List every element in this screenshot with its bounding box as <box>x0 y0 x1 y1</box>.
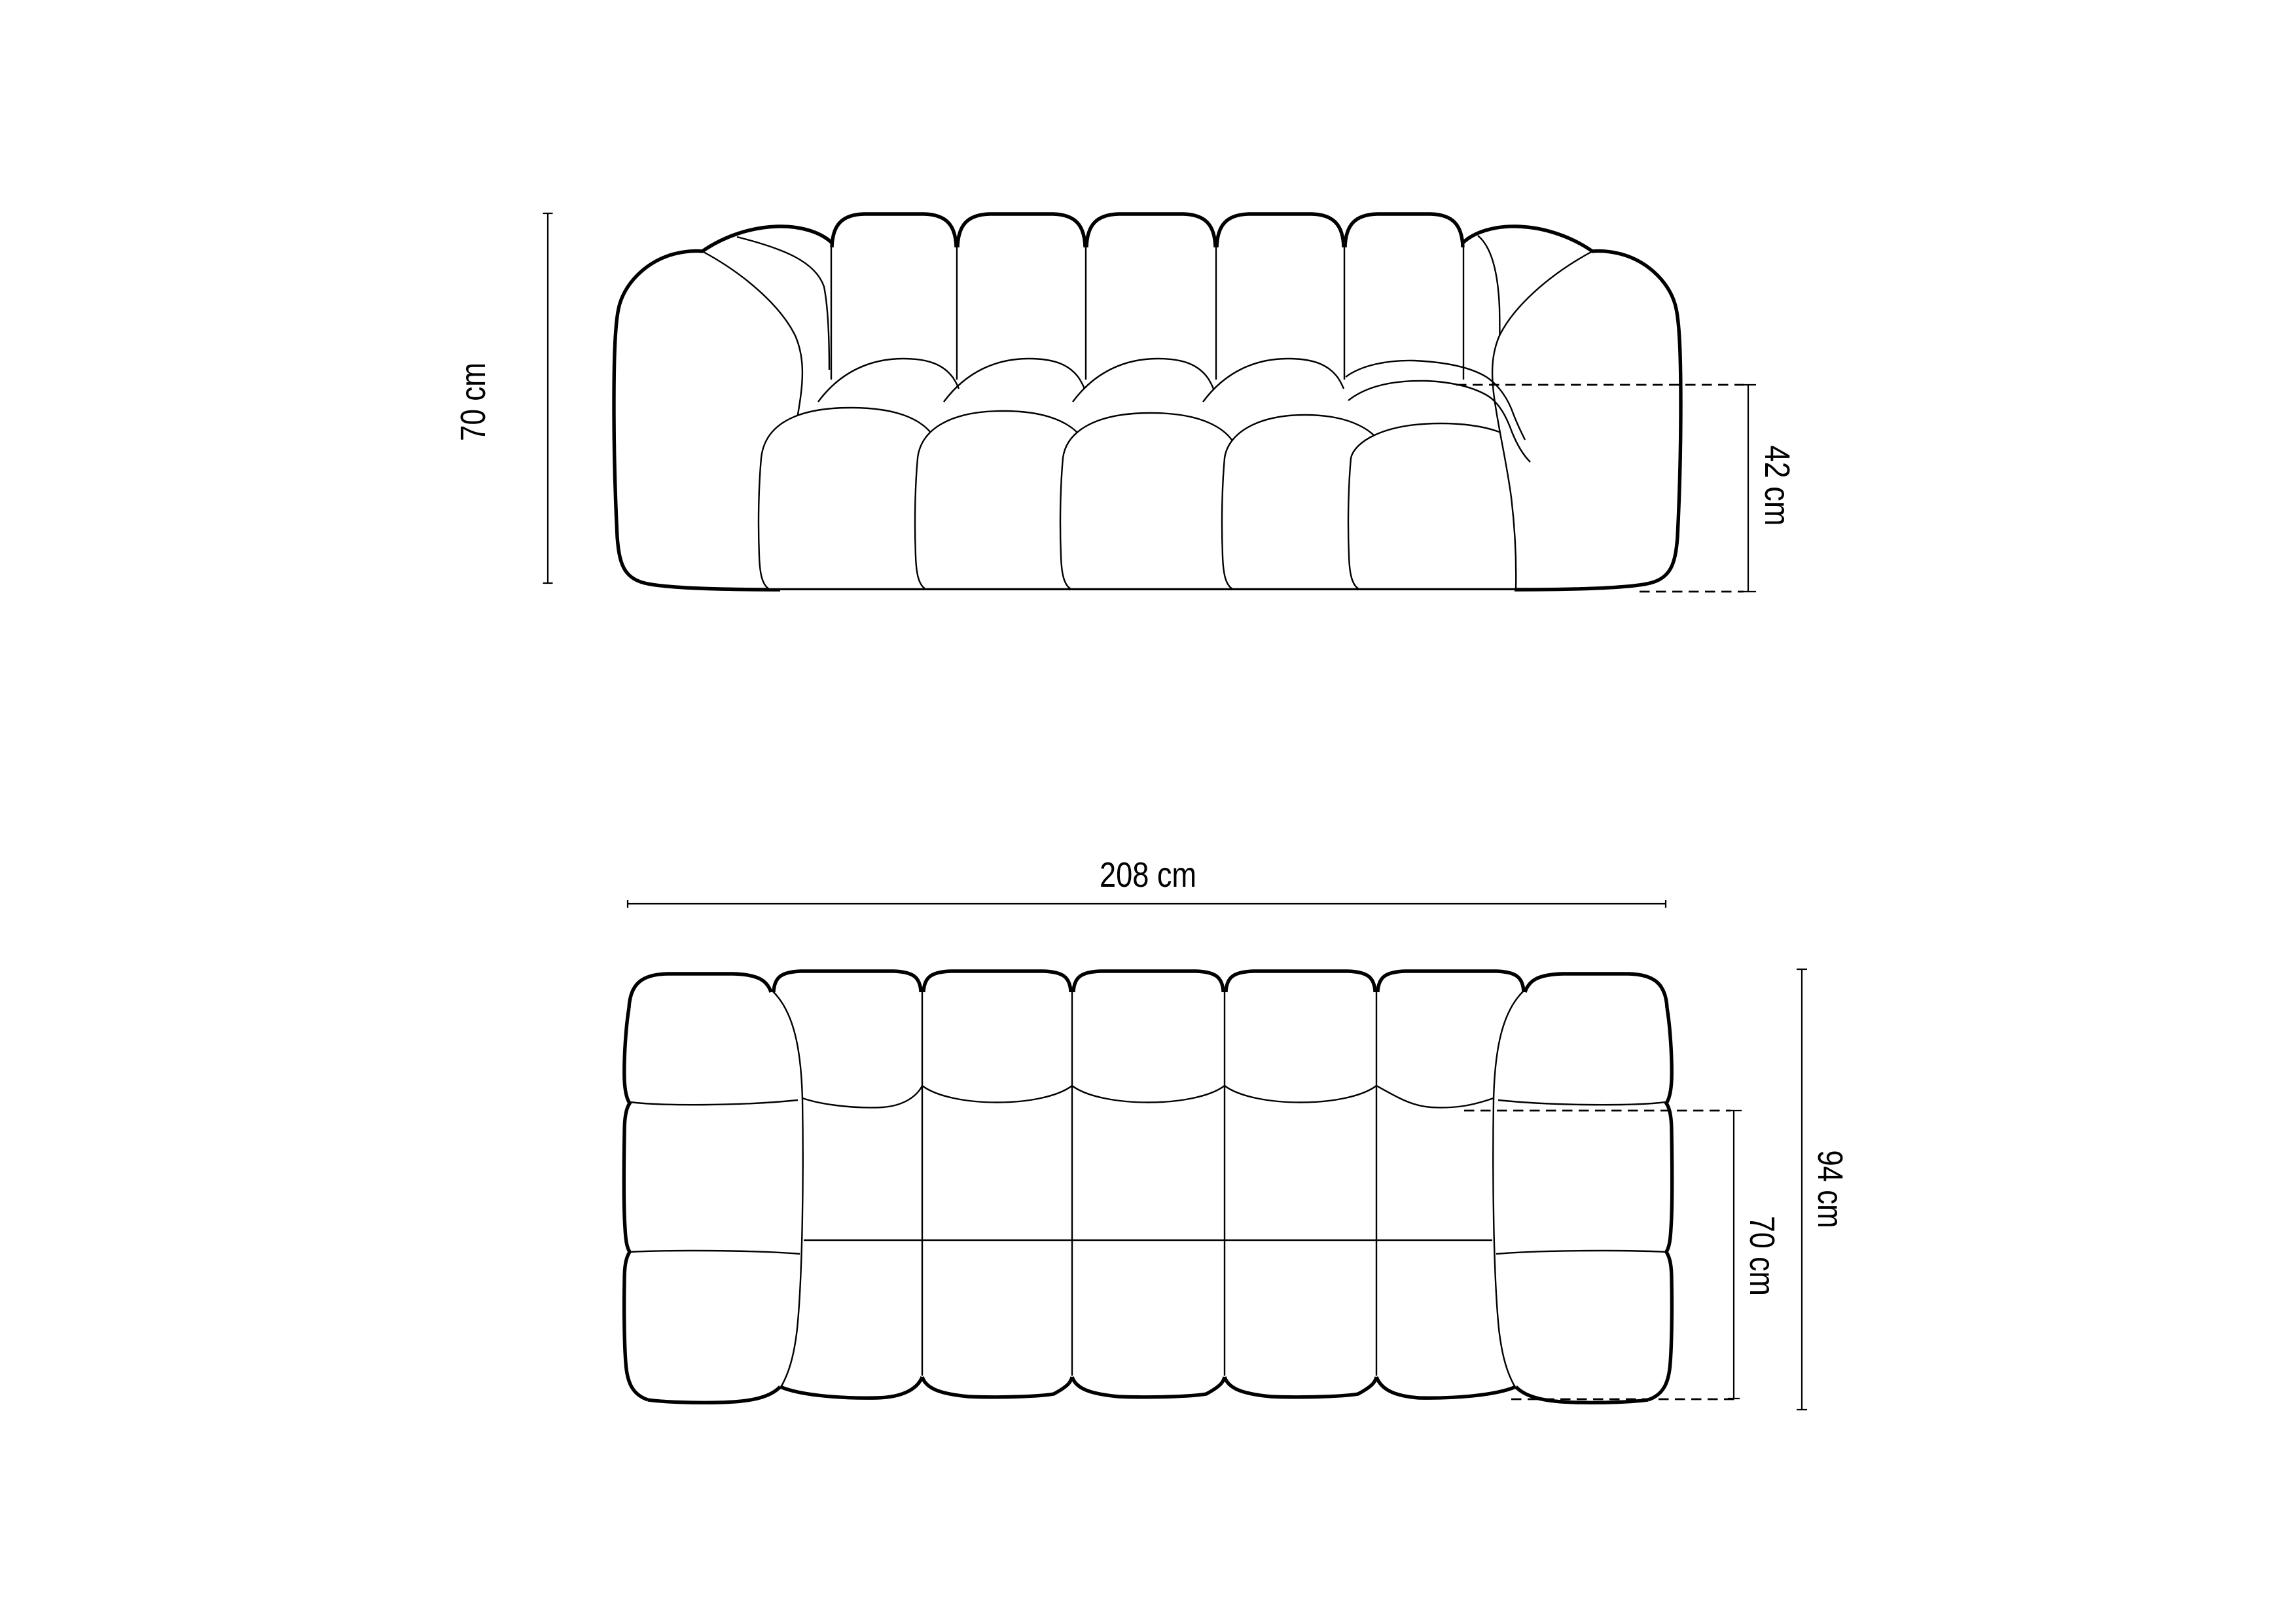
svg-text:70 cm: 70 cm <box>454 363 493 441</box>
svg-text:94 cm: 94 cm <box>1810 1150 1850 1228</box>
svg-text:70 cm: 70 cm <box>1742 1216 1782 1296</box>
svg-text:42 cm: 42 cm <box>1757 446 1797 526</box>
svg-text:208 cm: 208 cm <box>1100 855 1196 895</box>
